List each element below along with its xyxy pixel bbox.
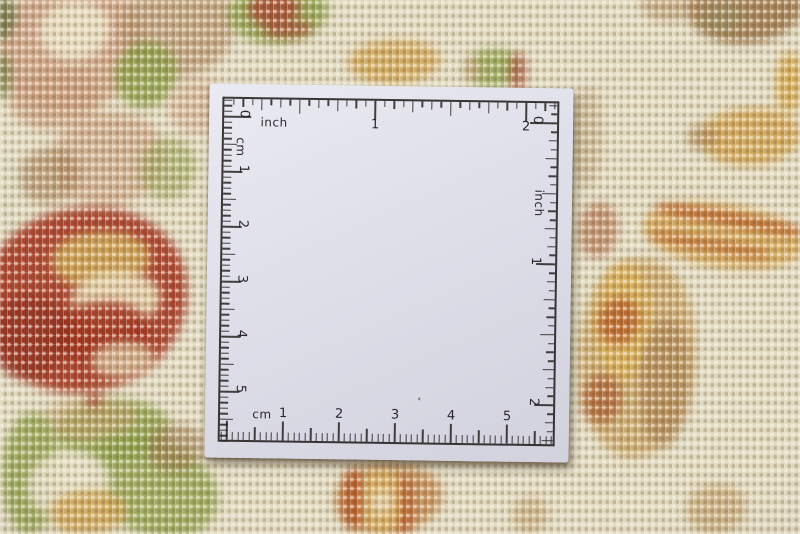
- ruler-tick: [495, 435, 497, 443]
- ruler-tick: [422, 429, 424, 442]
- ruler-tick: [316, 433, 318, 441]
- rug-motif: [50, 490, 126, 534]
- ruler-tick: [254, 427, 256, 440]
- rug-motif: [140, 138, 196, 200]
- ruler-tick: [282, 422, 284, 441]
- rug-motif: [686, 484, 746, 534]
- ruler-tick: [478, 430, 480, 443]
- ruler-tick: [276, 432, 278, 440]
- rug-motif: [776, 52, 800, 114]
- ruler-tick: [299, 433, 301, 441]
- ruler-tick: [310, 428, 312, 441]
- ruler-tick: [271, 432, 273, 440]
- ruler-tick: [372, 434, 374, 442]
- ruler-tick: [517, 436, 519, 444]
- rug-motif: [640, 318, 690, 448]
- ruler-tick: [366, 429, 368, 442]
- photo-of-rug-with-ruler-card: 12 012345 012 12345 inch cm inch cm: [0, 0, 800, 534]
- rug-motif: [92, 342, 154, 378]
- ruler-tick: [444, 435, 446, 443]
- ruler-tick: [237, 432, 239, 440]
- ruler-tick: [293, 433, 295, 441]
- ruler-tick: [467, 435, 469, 443]
- ruler-tick: [428, 435, 430, 443]
- ruler-tick: [243, 432, 245, 440]
- rug-motif: [348, 40, 440, 84]
- unit-label-cm-bottom: cm: [252, 408, 271, 420]
- ruler-tick: [489, 435, 491, 443]
- card-speck: [418, 397, 420, 400]
- ruler-tick: [232, 432, 234, 440]
- ruler-tick: [545, 436, 547, 444]
- ruler-tick: [439, 435, 441, 443]
- ruler-tick: [321, 433, 323, 441]
- ruler-tick: [484, 435, 486, 443]
- ruler-tick: [338, 422, 340, 441]
- ruler-tick: [540, 436, 542, 444]
- ruler-scale-bottom-cm: 12345: [220, 99, 558, 445]
- ruler-tick: [288, 433, 290, 441]
- ruler-tick: [472, 435, 474, 443]
- rug-motif: [344, 468, 362, 530]
- ruler-number: 3: [391, 409, 399, 422]
- ruler-tick: [220, 432, 222, 440]
- ruler-tick: [450, 424, 452, 443]
- ruler-tick: [327, 433, 329, 441]
- ruler-tick: [388, 434, 390, 442]
- ruler-card: 12 012345 012 12345 inch cm inch cm: [204, 83, 573, 462]
- ruler-tick: [433, 435, 435, 443]
- ruler-number: 4: [447, 409, 455, 422]
- ruler-tick: [534, 431, 536, 444]
- ruler-tick: [400, 434, 402, 442]
- ruler-tick: [260, 432, 262, 440]
- unit-label-inch-top: inch: [260, 116, 287, 128]
- ruler-frame: 12 012345 012 12345 inch cm inch cm: [218, 97, 560, 447]
- ruler-tick: [411, 434, 413, 442]
- ruler-tick: [394, 423, 396, 442]
- unit-label-inch-right: inch: [533, 189, 545, 216]
- rug-motif: [572, 86, 602, 190]
- rug-motif: [115, 42, 177, 108]
- ruler-tick: [220, 440, 228, 442]
- ruler-tick: [461, 435, 463, 443]
- ruler-tick: [304, 433, 306, 441]
- ruler-number: 5: [503, 410, 511, 423]
- ruler-tick: [344, 433, 346, 441]
- ruler-tick: [506, 425, 508, 444]
- ruler-tick: [500, 436, 502, 444]
- ruler-tick: [355, 434, 357, 442]
- ruler-tick: [248, 432, 250, 440]
- ruler-tick: [332, 433, 334, 441]
- ruler-tick: [416, 434, 418, 442]
- ruler-tick: [383, 434, 385, 442]
- unit-label-cm-left: cm: [235, 137, 247, 156]
- ruler-tick: [265, 432, 267, 440]
- ruler-number: 2: [335, 408, 343, 421]
- ruler-tick: [512, 436, 514, 444]
- rug-motif: [512, 496, 548, 534]
- rug-motif: [578, 202, 618, 258]
- ruler-tick: [349, 433, 351, 441]
- ruler-tick: [377, 434, 379, 442]
- ruler-tick: [405, 434, 407, 442]
- ruler-tick: [551, 436, 553, 444]
- ruler-tick: [523, 436, 525, 444]
- ruler-tick: [528, 436, 530, 444]
- ruler-tick: [360, 434, 362, 442]
- ruler-number: 1: [279, 407, 287, 420]
- ruler-tick: [226, 421, 228, 440]
- ruler-tick: [456, 435, 458, 443]
